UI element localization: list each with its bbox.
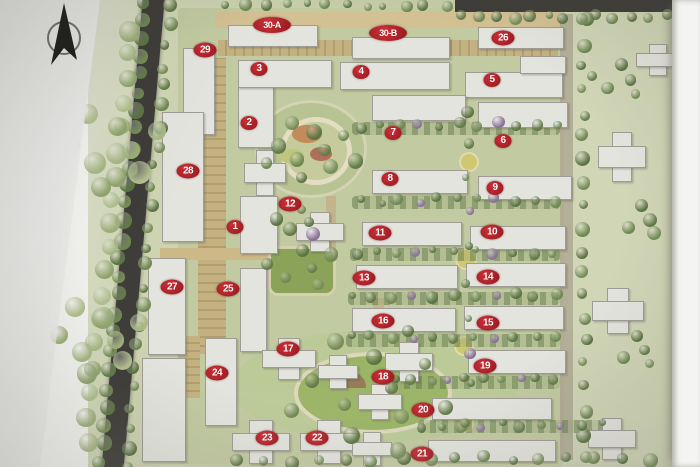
building-marker: 17 xyxy=(277,342,300,357)
building-marker: 6 xyxy=(495,134,512,148)
building-marker: 10 xyxy=(481,225,504,240)
building-marker: 23 xyxy=(256,431,279,446)
building-marker: 2 xyxy=(241,116,258,130)
building-marker: 7 xyxy=(385,126,402,140)
building-marker: 21 xyxy=(411,447,434,462)
building-marker: 20 xyxy=(412,403,435,418)
building-marker: 30-A xyxy=(253,17,291,33)
building-marker: 16 xyxy=(372,314,395,329)
building-marker: 28 xyxy=(177,164,200,179)
building-marker: 18 xyxy=(372,370,395,385)
building-marker: 4 xyxy=(353,65,370,79)
building-marker: 19 xyxy=(474,359,497,374)
building-marker: 27 xyxy=(161,280,184,295)
building-marker: 26 xyxy=(492,31,515,46)
building-marker: 14 xyxy=(477,270,500,285)
building-marker: 3 xyxy=(251,62,268,76)
markers-layer: 1234567891011121314151617181920212223242… xyxy=(0,0,700,467)
building-marker: 13 xyxy=(353,271,376,286)
building-marker: 29 xyxy=(194,43,217,58)
building-marker: 1 xyxy=(227,220,244,234)
building-marker: 22 xyxy=(306,431,329,446)
building-marker: 5 xyxy=(484,73,501,87)
building-marker: 9 xyxy=(487,181,504,195)
building-marker: 30-B xyxy=(369,25,407,41)
building-marker: 15 xyxy=(477,316,500,331)
building-marker: 12 xyxy=(279,197,302,212)
paper-margin-right xyxy=(672,0,700,467)
site-plan-photo: 1234567891011121314151617181920212223242… xyxy=(0,0,700,467)
building-marker: 25 xyxy=(217,282,240,297)
building-marker: 8 xyxy=(382,172,399,186)
building-marker: 24 xyxy=(206,366,229,381)
building-marker: 11 xyxy=(369,226,392,241)
